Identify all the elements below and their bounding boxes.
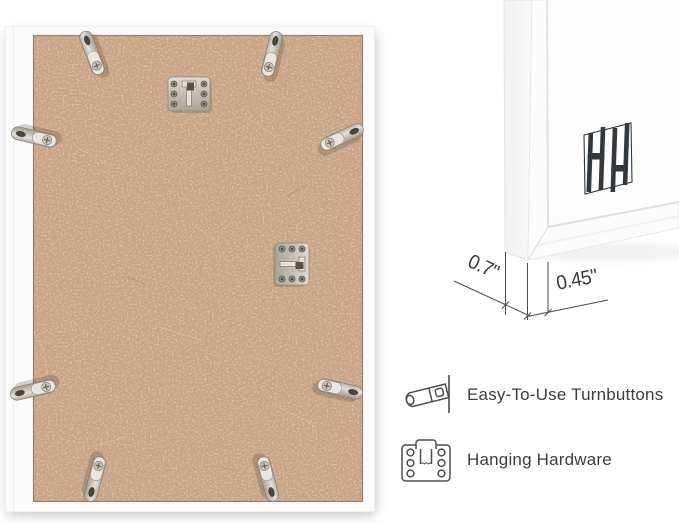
frame-mat (547, 0, 679, 227)
hanging-hardware-icon (399, 436, 453, 483)
feature-label: Hanging Hardware (467, 450, 612, 470)
mat-inner-shadow (547, 0, 548, 227)
face-dimension-line (528, 300, 609, 317)
frame-front-face (528, 0, 548, 260)
feature-label: Easy-To-Use Turnbuttons (467, 385, 663, 405)
frame-back-photo (5, 26, 375, 512)
frame-side-face (504, 0, 532, 260)
hanging-hardware-middle (273, 243, 309, 287)
depth-dimension-line (454, 281, 530, 316)
product-image-canvas: 0.7" 0.45" Easy-To-Use Turnbuttons (0, 0, 679, 523)
frame-back-render (5, 26, 375, 512)
turnbutton-icon (396, 372, 454, 416)
hanging-hardware-top (168, 77, 212, 113)
